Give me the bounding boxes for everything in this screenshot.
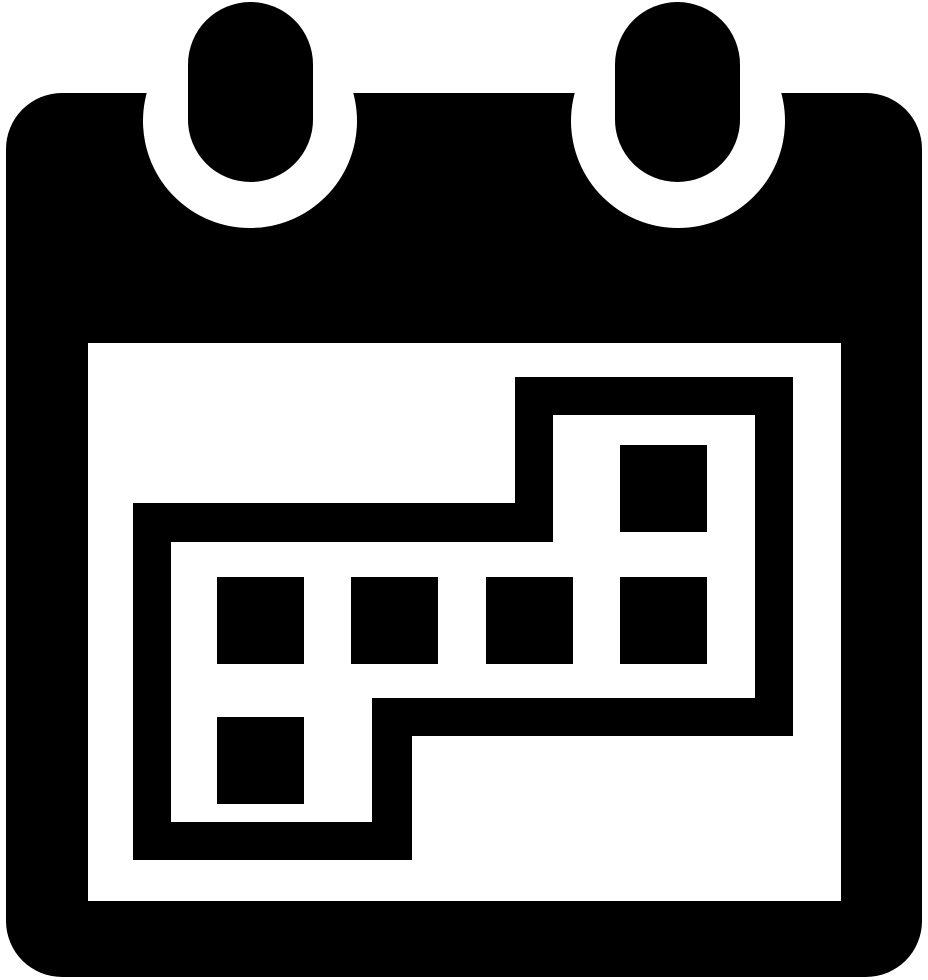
calendar-page <box>88 343 841 901</box>
marked-date-cell <box>217 717 304 804</box>
marked-date-cell <box>217 577 304 664</box>
calendar-icon-svg <box>0 0 928 980</box>
calendar-icon <box>0 0 928 980</box>
marked-date-cell <box>620 577 707 664</box>
binder-ring-right-icon <box>615 2 740 182</box>
binder-ring-left-icon <box>188 2 313 182</box>
marked-date-cell <box>620 445 707 532</box>
marked-date-cell <box>486 577 573 664</box>
marked-date-cell <box>351 577 438 664</box>
